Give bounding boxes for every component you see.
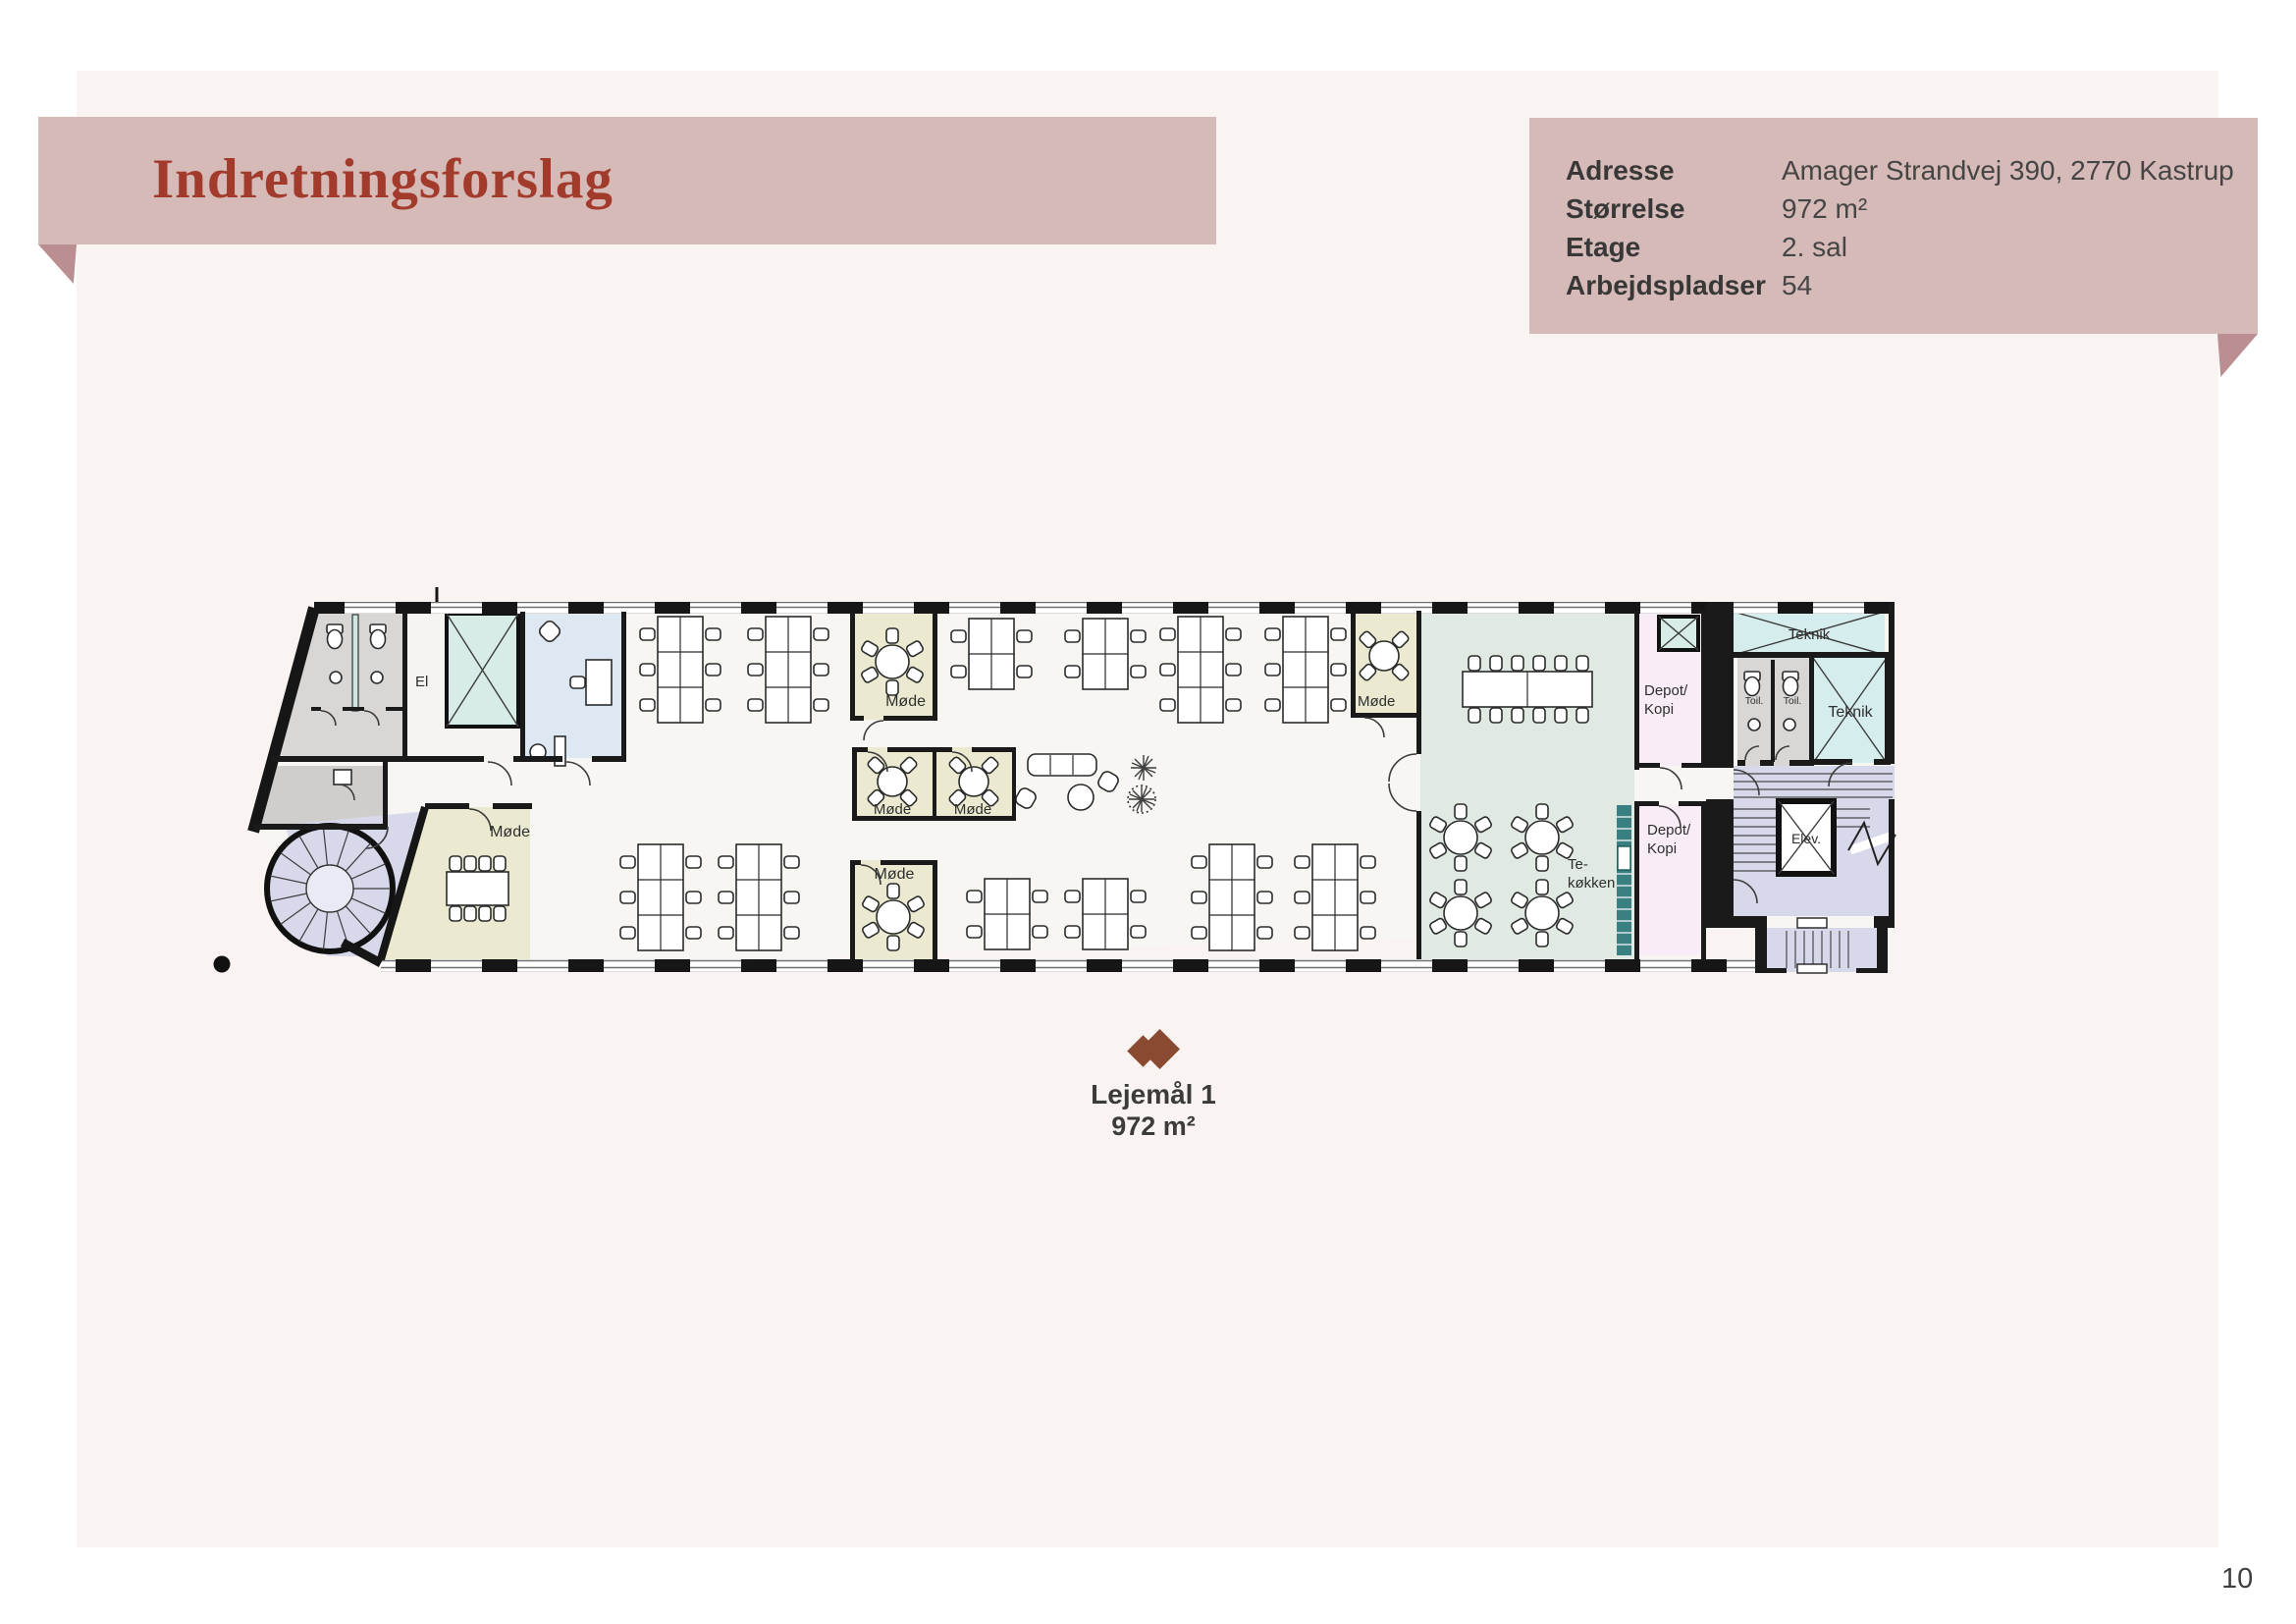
lease-area: 972 m²	[1001, 1110, 1306, 1142]
label-meeting-bottom: Møde	[875, 866, 915, 883]
toilet-partition	[352, 615, 358, 711]
info-value: 54	[1782, 266, 2238, 304]
info-label: Adresse	[1566, 151, 1782, 189]
info-label: Arbejdspladser	[1566, 266, 1782, 304]
label-meeting-top: Møde	[885, 693, 926, 710]
sink-icon	[1748, 719, 1760, 731]
label-meeting-mid-right: Møde	[954, 801, 991, 818]
label-depot-bottom-2: Kopi	[1647, 840, 1677, 857]
label-tea-kitchen-1: Te-	[1568, 856, 1588, 873]
info-row-workstations: Arbejdspladser 54	[1566, 266, 2238, 304]
info-row-address: Adresse Amager Strandvej 390, 2770 Kastr…	[1566, 151, 2238, 189]
label-depot-top-1: Depot/	[1644, 682, 1688, 699]
sink-icon	[371, 672, 383, 683]
label-tea-kitchen-2: køkken	[1568, 875, 1615, 892]
property-info-box: Adresse Amager Strandvej 390, 2770 Kastr…	[1529, 118, 2258, 334]
label-meeting-sw: Møde	[490, 824, 530, 840]
label-meeting-mid-left: Møde	[874, 801, 911, 818]
label-elevator: Elev.	[1791, 831, 1821, 846]
label-depot-bottom-1: Depot/	[1647, 822, 1691, 839]
office-desk	[586, 660, 612, 705]
page-title: Indretningsforslag	[152, 117, 1216, 243]
info-value: Amager Strandvej 390, 2770 Kastrup	[1782, 151, 2238, 189]
lease-label: Lejemål 1 972 m²	[1001, 1029, 1306, 1142]
reference-dot	[214, 956, 231, 973]
label-meeting-east: Møde	[1358, 693, 1395, 710]
prospectus-page: Indretningsforslag Adresse Amager Strand…	[0, 0, 2296, 1624]
info-row-size: Størrelse 972 m²	[1566, 189, 2238, 228]
sink-icon	[1784, 719, 1795, 731]
infobox-fold-icon	[2217, 334, 2258, 377]
info-label: Størrelse	[1566, 189, 1782, 228]
coffee-table	[1068, 785, 1094, 810]
lease-name: Lejemål 1	[1001, 1078, 1306, 1110]
floor-plan: El Møde Møde Møde Møde Møde Møde Te- køk…	[182, 587, 1899, 1009]
sink-icon	[330, 672, 342, 683]
info-value: 972 m²	[1782, 189, 2238, 228]
info-value: 2. sal	[1782, 228, 2238, 266]
label-toilet-2: Toil.	[1784, 695, 1802, 707]
page-number: 10	[2221, 1563, 2253, 1596]
label-el: El	[415, 674, 428, 690]
label-toilet-1: Toil.	[1745, 695, 1764, 707]
spiral-staircase	[267, 826, 393, 951]
hall-sink	[334, 770, 351, 785]
label-teknik-strip: Teknik	[1789, 626, 1831, 643]
brand-diamond-icon	[1128, 1029, 1179, 1072]
label-teknik-square: Teknik	[1828, 704, 1873, 721]
label-depot-top-2: Kopi	[1644, 701, 1674, 718]
title-banner: Indretningsforslag	[38, 117, 1216, 244]
banner-fold-icon	[38, 244, 77, 284]
info-row-floor: Etage 2. sal	[1566, 228, 2238, 266]
info-label: Etage	[1566, 228, 1782, 266]
kitchen-sink	[1618, 846, 1630, 870]
